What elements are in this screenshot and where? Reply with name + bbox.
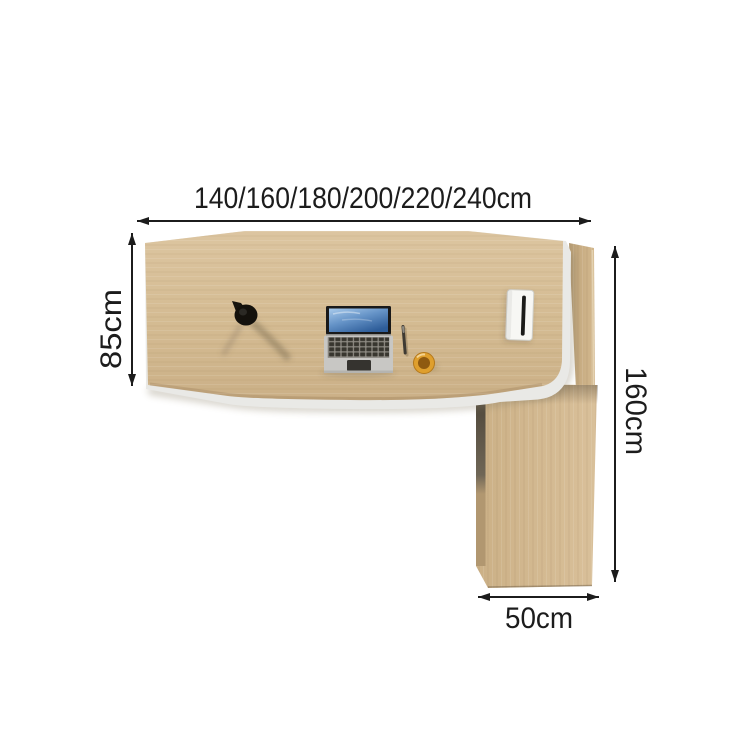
product-dimension-page: 140/160/180/200/220/240cm 85cm 160cm 50c…	[0, 0, 750, 750]
dimension-right-length: 160cm	[615, 246, 652, 582]
dimension-diagram: 140/160/180/200/220/240cm 85cm 160cm 50c…	[0, 0, 750, 750]
laptop	[321, 306, 395, 378]
dimension-left-depth: 85cm	[95, 233, 132, 386]
laptop-touchpad	[347, 360, 371, 371]
storage-cabinet	[474, 384, 598, 588]
depth-dimension-label: 85cm	[95, 289, 128, 369]
return-width-dimension-label: 50cm	[505, 602, 573, 635]
cable-grommet	[503, 289, 534, 343]
side-length-dimension-label: 160cm	[619, 367, 652, 455]
width-dimension-label: 140/160/180/200/220/240cm	[194, 182, 532, 215]
dimension-bottom-return: 50cm	[478, 597, 599, 635]
laptop-screen	[326, 306, 391, 335]
dimension-top-width: 140/160/180/200/220/240cm	[137, 182, 591, 221]
pen	[403, 327, 407, 356]
cabinet-shadow-gap	[476, 398, 486, 494]
